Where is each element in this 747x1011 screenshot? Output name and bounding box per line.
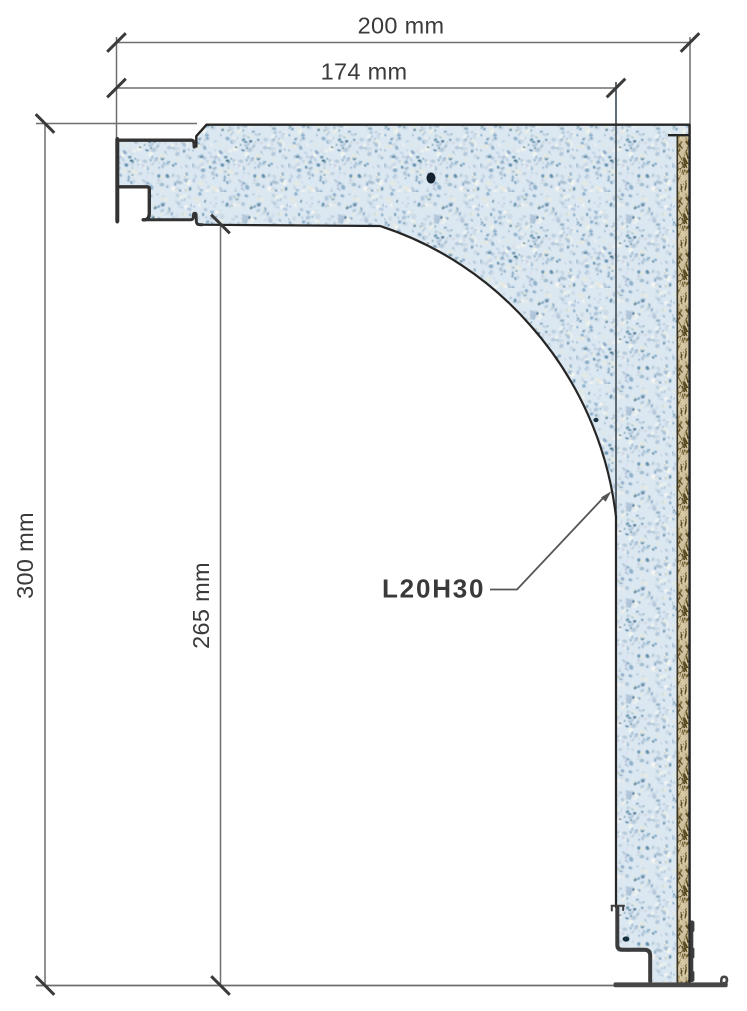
svg-text:L20H30: L20H30 bbox=[382, 574, 485, 604]
svg-text:174 mm: 174 mm bbox=[321, 59, 408, 85]
svg-text:200 mm: 200 mm bbox=[358, 13, 445, 39]
svg-text:300 mm: 300 mm bbox=[12, 512, 38, 599]
svg-text:265 mm: 265 mm bbox=[188, 562, 214, 649]
